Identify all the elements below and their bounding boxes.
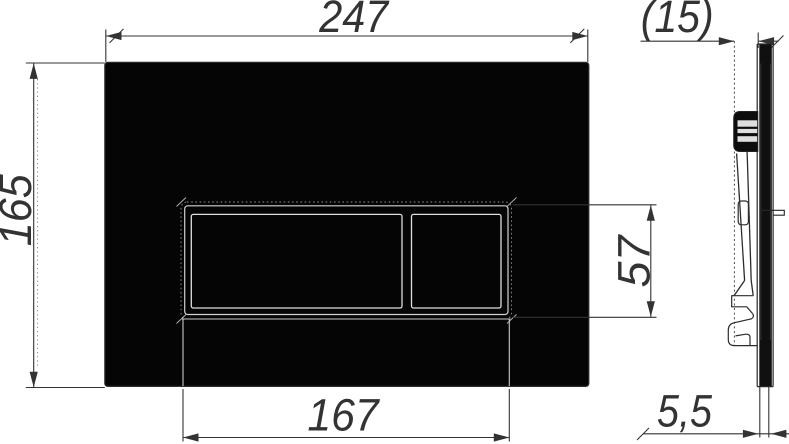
svg-text:(15): (15) [641,0,714,42]
svg-text:165: 165 [0,174,41,247]
svg-text:57: 57 [608,234,659,288]
svg-text:247: 247 [318,0,390,42]
svg-text:5,5: 5,5 [657,386,713,437]
svg-text:167: 167 [307,390,380,441]
